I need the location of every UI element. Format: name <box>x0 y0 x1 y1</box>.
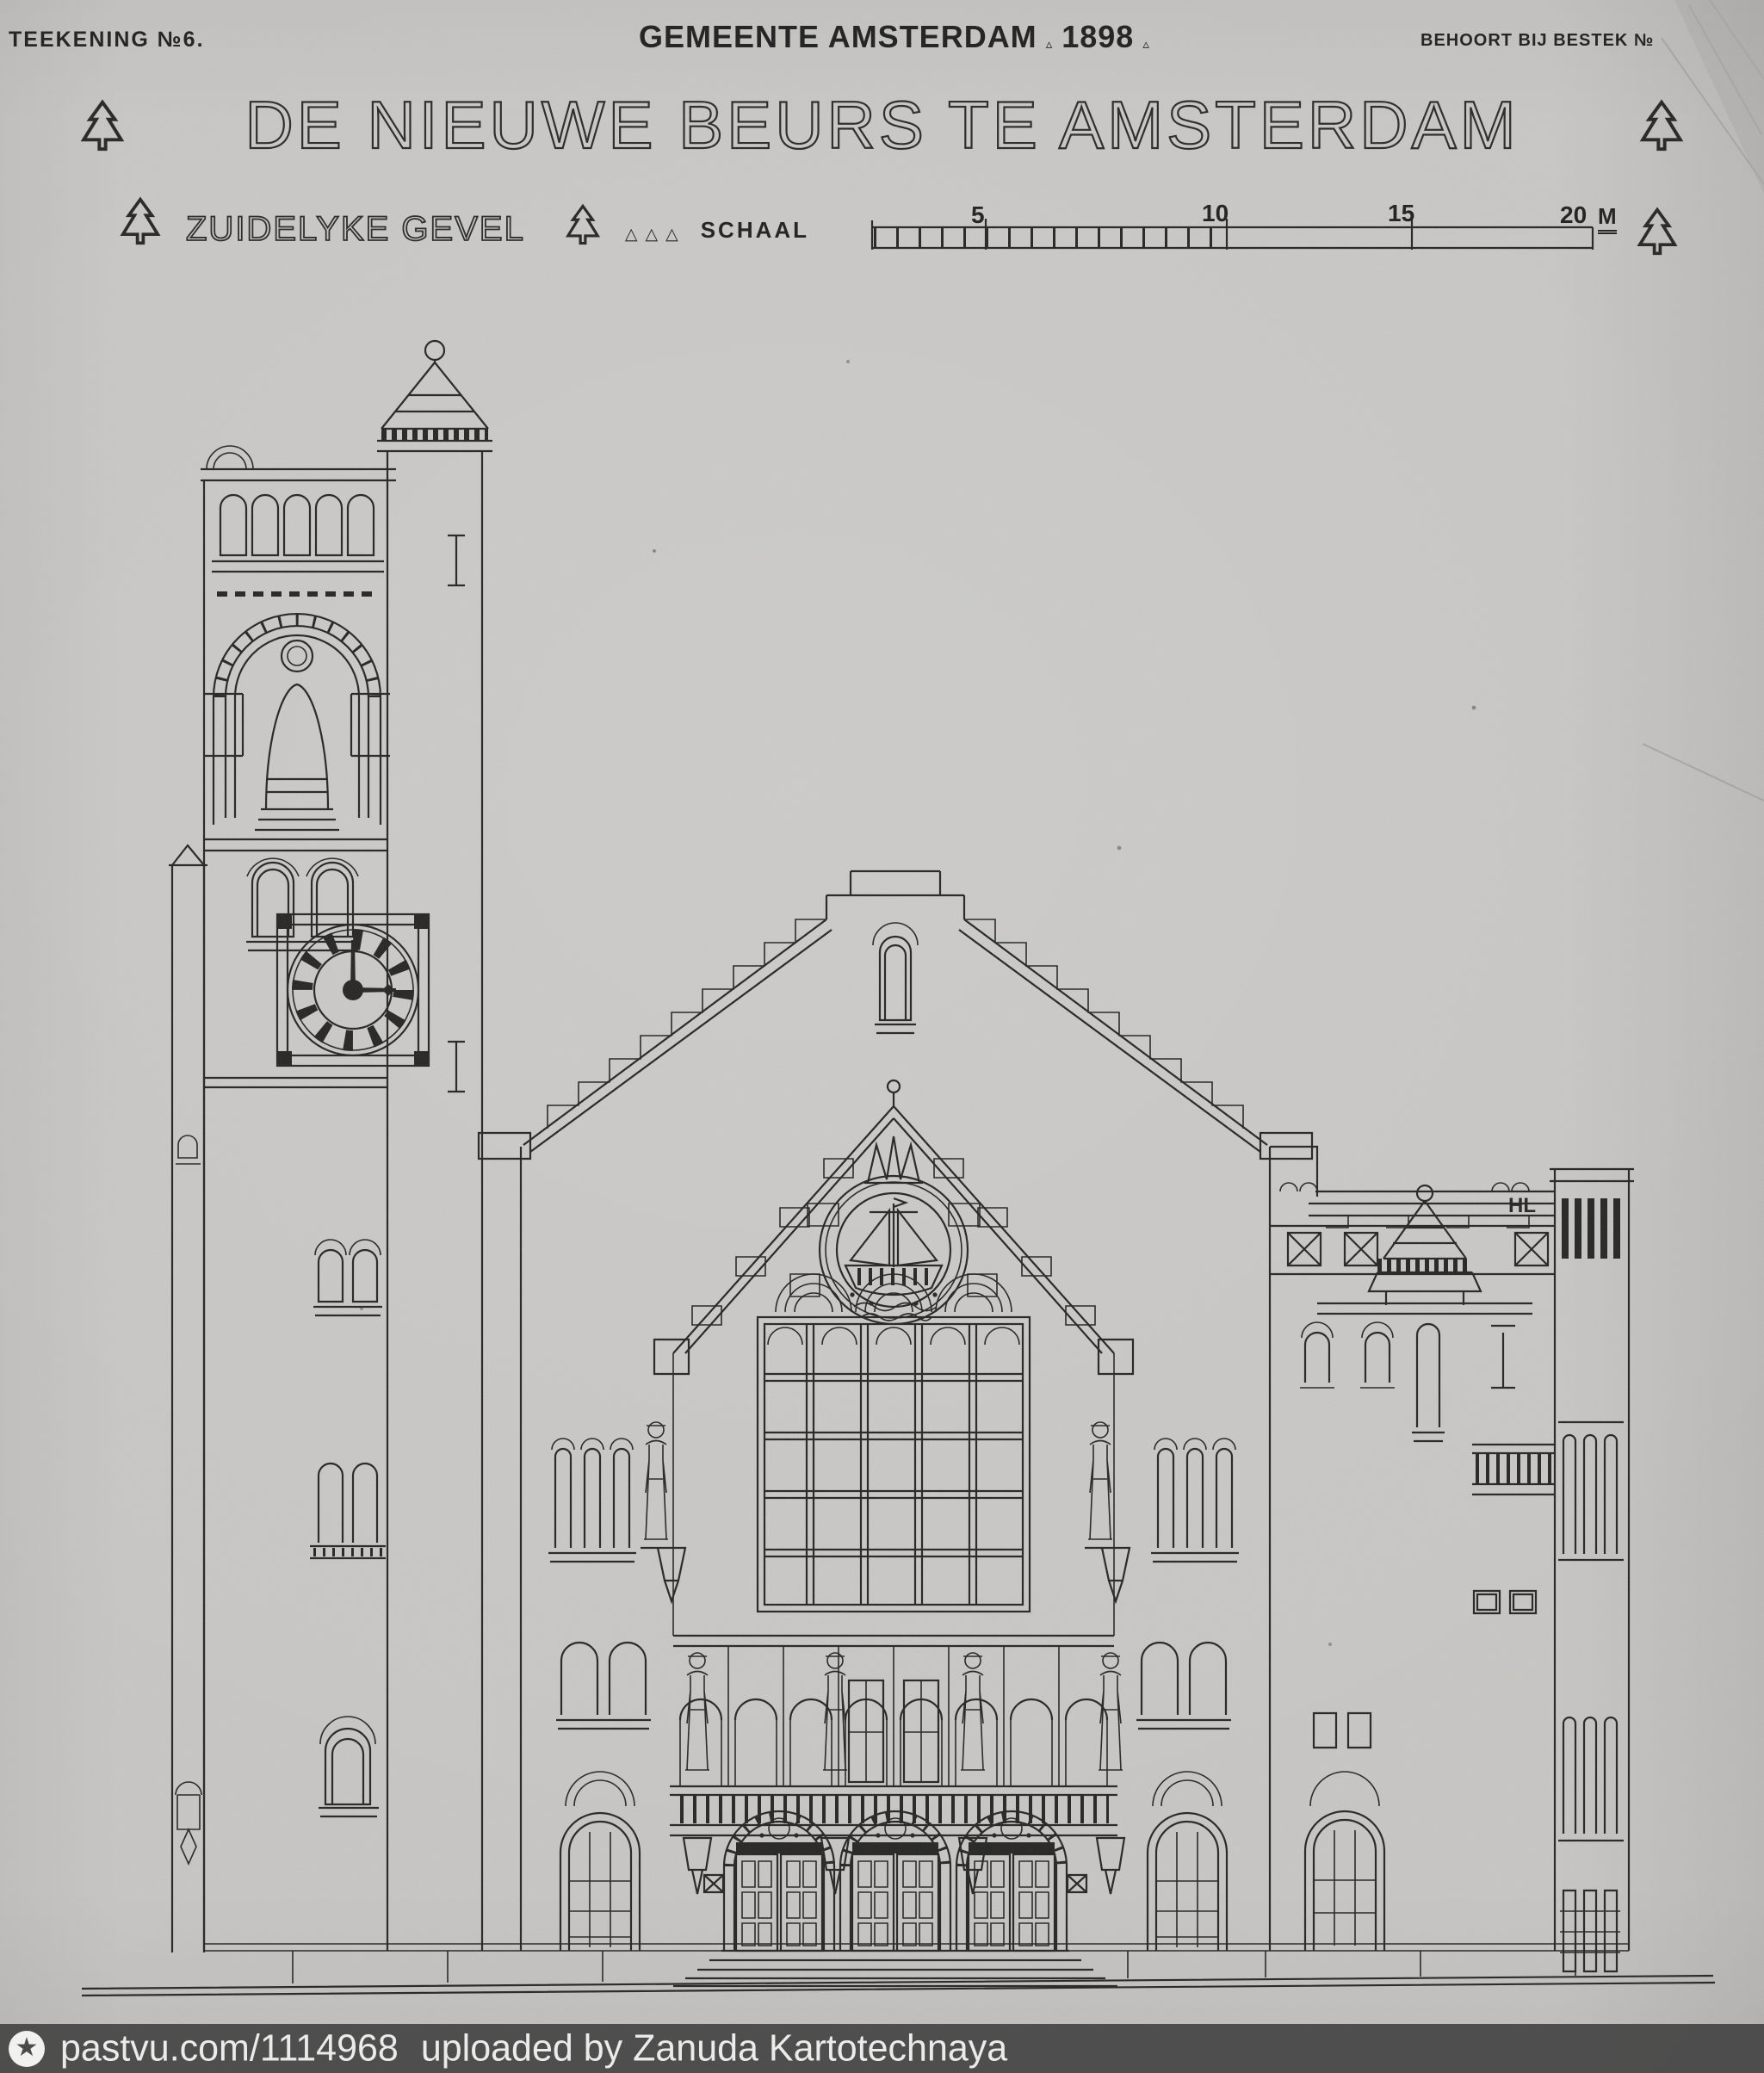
tower-spire <box>377 341 492 451</box>
bell-arch <box>204 614 390 830</box>
watermark-bar: ★ pastvu.com/1114968 uploaded by Zanuda … <box>0 2024 1764 2073</box>
hall-stepped-gable <box>479 871 1312 1951</box>
left-annex-wall <box>169 845 207 1952</box>
entrance-arches <box>673 1811 1117 1986</box>
drawing-annotation: HL <box>1508 1194 1536 1217</box>
facade-statues <box>641 1422 1130 1601</box>
great-hall-window <box>758 1274 1030 1612</box>
ground-line <box>82 1951 1715 1996</box>
tower-lower-windows <box>310 1240 386 1816</box>
ship-medallion <box>790 1176 997 1324</box>
pavilion-gable <box>654 1080 1133 1636</box>
bell <box>255 640 339 830</box>
watermark-site-link: pastvu.com/1114968 <box>60 2027 399 2070</box>
watermark-credit: uploaded by Zanuda Kartotechnaya <box>421 2027 1007 2070</box>
pastvu-logo-icon: ★ <box>9 2031 45 2067</box>
tower-arcade <box>212 495 384 594</box>
right-corner-tower <box>1550 1169 1634 1971</box>
blueprint-sheet: TEEKENING №6. GEMEENTE AMSTERDAM ▵ 1898 … <box>0 0 1764 2073</box>
paper-crease <box>360 0 1764 1646</box>
tower-twin-windows <box>246 858 360 950</box>
building-elevation-drawing: HL <box>0 0 1764 2073</box>
clock-tower <box>201 341 492 1951</box>
right-wing: HL <box>1270 1147 1555 1951</box>
